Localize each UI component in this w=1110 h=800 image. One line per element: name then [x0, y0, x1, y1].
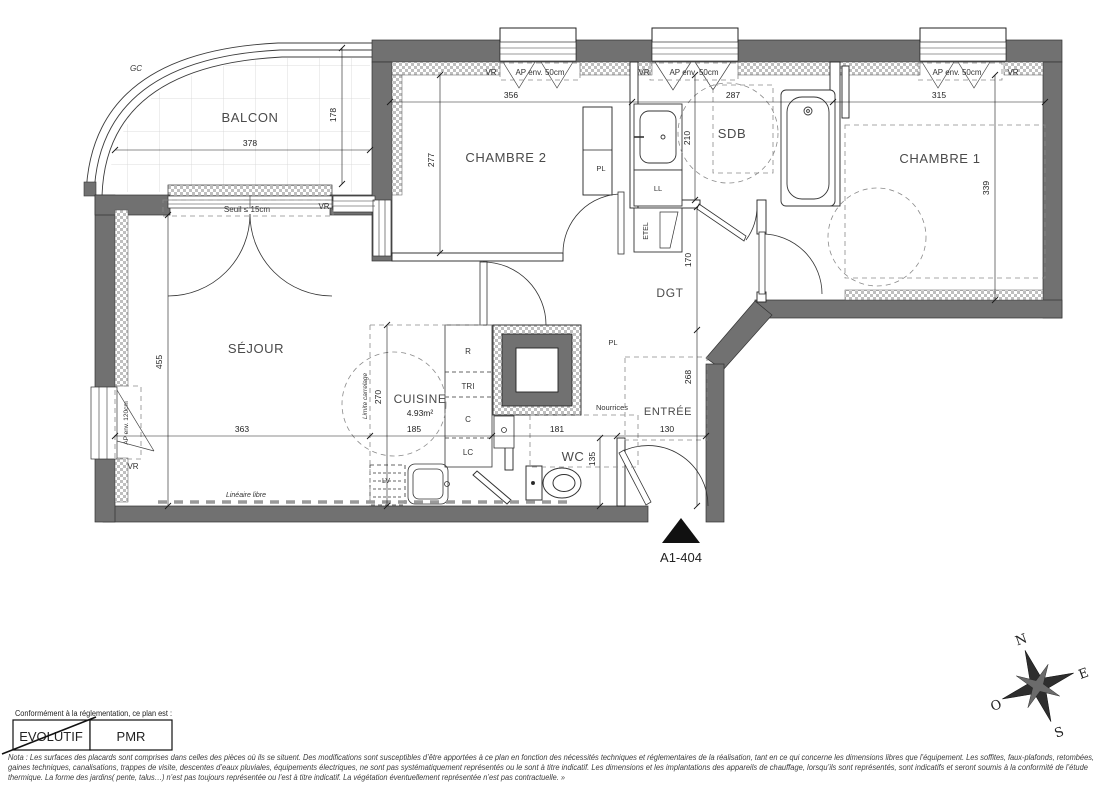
kitchen-sink — [408, 464, 448, 504]
room-label-dgt: DGT — [656, 286, 683, 300]
unit-number: A1-404 — [660, 550, 702, 565]
guardrail-label: GC — [130, 64, 142, 73]
dim-wc-d: 135 — [587, 452, 597, 466]
bed-zone-chambre1 — [845, 125, 1045, 278]
compass-east: E — [1077, 665, 1091, 682]
nota-line2: gaines techniques, canalisations, trappe… — [8, 763, 1089, 772]
dim-cuisine-w: 185 — [407, 424, 421, 434]
kitchen-units — [370, 325, 514, 505]
nota-line3: thermique. La forme des jardins( pente, … — [8, 773, 566, 782]
room-label-chambre2: CHAMBRE 2 — [465, 150, 546, 165]
wall-entree-right — [706, 364, 724, 522]
window-glazing-chambre1 — [920, 42, 1006, 61]
compass-rose-icon: N E S O — [971, 616, 1107, 759]
compass-west: O — [989, 697, 1004, 715]
dim-chambre2-d: 277 — [426, 153, 436, 167]
closet-chambre2 — [583, 107, 612, 195]
floor-plan: BALCON CHAMBRE 2 SDB CHAMBRE 1 SÉJOUR CU… — [0, 0, 1110, 800]
door-chambre1-leaf — [759, 232, 765, 294]
window-glazing-sdb — [652, 42, 738, 61]
room-label-balcon: BALCON — [221, 110, 278, 125]
dim-entree-d: 268 — [683, 370, 693, 384]
etel-cabinet — [634, 208, 682, 252]
dim-cuisine-d: 270 — [373, 390, 383, 404]
wc-door-panel — [473, 471, 511, 504]
ap50-label-chambre1: AP env. 50cm — [932, 68, 981, 77]
dim-sdb-w: 287 — [726, 90, 740, 100]
wall-balcony-sejour-left — [95, 195, 170, 215]
wall-left-upper — [95, 195, 115, 388]
room-label-cuisine: CUISINE — [394, 392, 447, 406]
dim-sejour-d: 455 — [154, 355, 164, 369]
door-sdb-leaf — [697, 204, 746, 241]
vr-label-chambre2: VR — [485, 68, 496, 77]
window-glazing-chambre2 — [500, 42, 576, 61]
dim-dgt-d: 170 — [683, 253, 693, 267]
room-label-sdb: SDB — [718, 126, 747, 141]
french-door-right-swing — [250, 214, 332, 296]
dishwasher-zone — [370, 465, 405, 505]
limite-carrelage-label: Limite carrelage — [362, 372, 369, 419]
legend-caption: Conformément à la réglementation, ce pla… — [15, 709, 172, 718]
dim-entree-w: 130 — [660, 424, 674, 434]
lc-label: LC — [463, 448, 473, 457]
nota-line1: Nota : Les surfaces des placards sont co… — [8, 753, 1094, 762]
door-chambre2-leaf — [618, 192, 624, 254]
ap50-label-chambre2: AP env. 50cm — [515, 68, 564, 77]
wall-right — [1043, 62, 1062, 318]
ll-label: LL — [654, 184, 662, 193]
entrance-arrow-icon — [662, 518, 700, 543]
partition-chambre2-bottom — [392, 253, 563, 261]
door-sejour-dgt-leaf — [480, 262, 487, 325]
unit-marker: A1-404 — [660, 518, 702, 565]
window-balcony-return — [373, 200, 391, 256]
vr-label-sdb: VR — [638, 68, 649, 77]
window-sejour-top — [333, 196, 375, 212]
door-sejour-dgt-swing — [483, 262, 546, 325]
dim-balcon-d: 178 — [328, 108, 338, 122]
legend: Conformément à la réglementation, ce pla… — [2, 709, 172, 754]
fridge-label: R — [465, 347, 471, 356]
room-label-entree: ENTRÉE — [644, 405, 692, 418]
room-label-chambre1: CHAMBRE 1 — [899, 151, 980, 166]
dim-balcon-w: 378 — [243, 138, 257, 148]
technical-shaft — [493, 325, 581, 415]
cuisine-area-label: 4.93m² — [407, 408, 434, 418]
french-door-left-swing — [168, 214, 250, 296]
vr-label-chambre1: VR — [1007, 68, 1018, 77]
floor-plan-page: BALCON CHAMBRE 2 SDB CHAMBRE 1 SÉJOUR CU… — [0, 0, 1110, 800]
nourrices-label: Nourrices — [596, 403, 628, 412]
pl-label-entree: PL — [608, 338, 617, 347]
dim-chambre2-w: 356 — [504, 90, 518, 100]
wc-fittings — [473, 466, 581, 504]
compass-south: S — [1053, 724, 1066, 741]
legend-pmr: PMR — [117, 729, 146, 744]
door-sdb-swing — [746, 206, 757, 240]
ap120-label: AP env. 120cm — [123, 401, 130, 444]
wall-chambre1-bottom — [755, 300, 1062, 318]
pl-label-chambre2: PL — [596, 164, 605, 173]
dim-wc-w: 181 — [550, 424, 564, 434]
room-label-wc: WC — [562, 449, 585, 464]
partition-wc-entree — [617, 438, 625, 506]
dim-sdb-d: 210 — [682, 131, 692, 145]
wall-bottom — [103, 506, 648, 522]
wall-left-lower — [95, 458, 115, 522]
compass-north: N — [1014, 631, 1030, 649]
ap50-label-sdb: AP env. 50cm — [669, 68, 718, 77]
pmr-circle-chambre1 — [828, 188, 926, 286]
partition-dgt-chambre1-top — [757, 200, 766, 234]
seuil-label: Seuil ≤ 15cm — [224, 205, 271, 214]
balcony-wall-stub — [84, 182, 96, 196]
room-label-sejour: SÉJOUR — [228, 341, 284, 356]
vr-label-sejour: VR — [318, 202, 329, 211]
tri-label: TRI — [462, 382, 475, 391]
french-door-threshold — [168, 185, 332, 196]
dim-chambre1-d: 339 — [981, 181, 991, 195]
etel-label: ETEL — [643, 222, 650, 240]
legend-evolutif: EVOLUTIF — [19, 729, 83, 744]
closet-leaf-chambre1 — [842, 66, 849, 118]
dim-chambre1-w: 315 — [932, 90, 946, 100]
wall-diagonal — [706, 301, 772, 370]
lv-label: LV — [382, 478, 390, 485]
nota-block: Nota : Les surfaces des placards sont co… — [8, 753, 1094, 782]
lineaire-libre-label: Linéaire libre — [226, 492, 266, 499]
door-chambre1-swing — [762, 234, 822, 294]
door-chambre2-swing — [563, 194, 622, 253]
dim-sejour-w: 363 — [235, 424, 249, 434]
c-label: C — [465, 415, 471, 424]
window-sejour-left — [91, 387, 117, 459]
hand-basin — [494, 416, 514, 448]
vr-label-sejour-left: VR — [127, 462, 138, 471]
